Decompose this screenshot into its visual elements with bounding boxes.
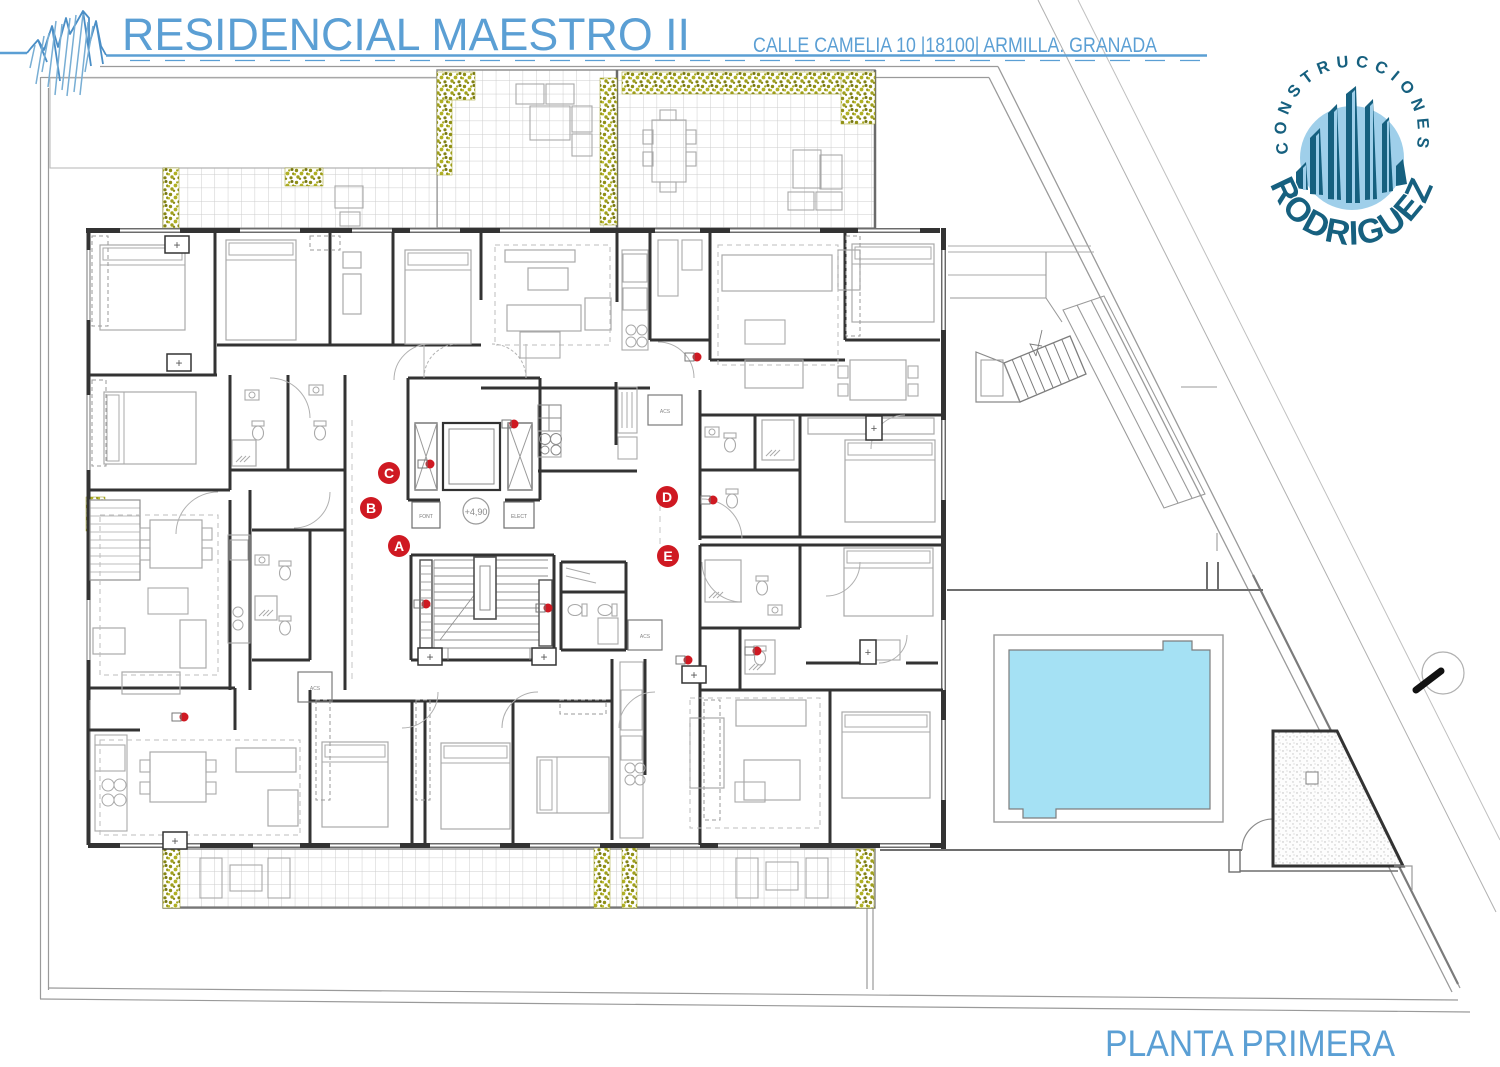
svg-text:ELECT: ELECT	[511, 514, 527, 520]
svg-text:+: +	[690, 668, 697, 682]
svg-text:+4,90: +4,90	[465, 507, 488, 517]
svg-text:+: +	[865, 647, 871, 659]
svg-text:FONT: FONT	[419, 514, 433, 520]
svg-text:ACS: ACS	[310, 686, 321, 692]
svg-text:C: C	[384, 465, 394, 481]
svg-text:+: +	[871, 423, 877, 435]
svg-text:CALLE CAMELIA 10 |18100| ARMI: CALLE CAMELIA 10 |18100| ARMILLA. GRANAD…	[753, 33, 1158, 57]
svg-text:PLANTA PRIMERA: PLANTA PRIMERA	[1105, 1023, 1395, 1064]
svg-text:B: B	[366, 500, 376, 516]
svg-text:RESIDENCIAL MAESTRO II: RESIDENCIAL MAESTRO II	[122, 9, 690, 60]
svg-text:A: A	[394, 538, 404, 554]
svg-text:+: +	[173, 238, 180, 252]
svg-text:+: +	[540, 650, 547, 664]
svg-text:+: +	[426, 650, 433, 664]
svg-text:E: E	[663, 548, 672, 564]
svg-text:+: +	[175, 356, 182, 370]
svg-text:ACS: ACS	[640, 634, 651, 640]
svg-text:ACS: ACS	[660, 409, 671, 415]
svg-text:+: +	[171, 834, 178, 848]
svg-text:D: D	[662, 489, 672, 505]
